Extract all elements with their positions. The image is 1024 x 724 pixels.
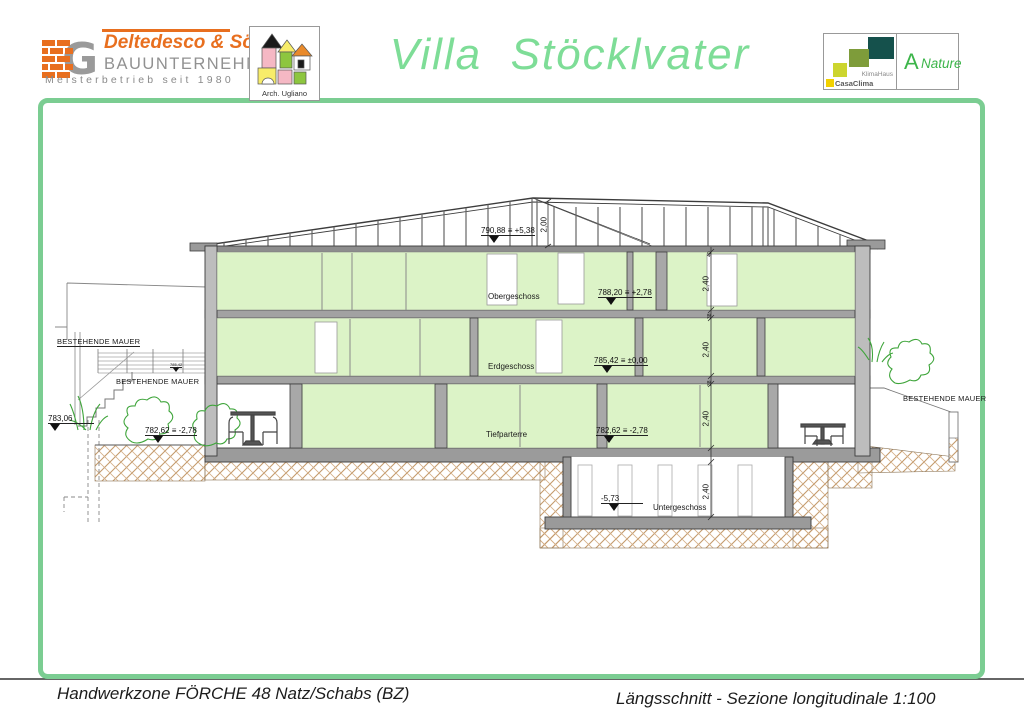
elevation-marker-terrace-left: 782,62 ≡ -2,78 [145,426,197,443]
project-address: Handwerkzone FÖRCHE 48 Natz/Schabs (BZ) [57,684,409,704]
level-triangle-icon [489,236,499,243]
level-triangle-icon [173,368,179,372]
elevation-marker-upper-floor: 788,20 ≡ +2,78 [598,288,652,305]
floor-label-untergeschoss: Untergeschoss [653,503,706,512]
floor-label-obergeschoss: Obergeschoss [488,292,540,301]
elevation-marker-wall: 785,42 [170,362,182,372]
basement [545,457,811,529]
nature-rating-badge: A Nature [896,33,959,90]
elevation-marker-eaves: 790,88 ≡ +5,38 [481,226,535,243]
level-triangle-icon [606,298,616,305]
brick-logo-icon: G [42,32,102,80]
roof [190,198,885,251]
elevation-marker-lower-floor: 782,62 ≡ -2,78 [596,426,648,443]
klimahaus-logo: KlimaHaus CasaClima [823,33,898,90]
dim-storey-tp: 2,40 [702,405,711,427]
dim-slab-1: 38 [707,307,713,319]
elevation-marker-ground-floor: 785,42 ≡ ±0,00 [594,356,648,373]
casaclima-brand: CasaClima [835,79,873,88]
elevation-marker-site-left: 783,06 [48,414,94,431]
room-obergeschoss [217,252,855,310]
company-logo: G Deltedesco & Söhne BAUUNTERNEHMEN Meis… [42,24,282,88]
floor-label-erdgeschoss: Erdgeschoss [488,362,534,371]
company-tagline: Meisterbetrieb seit 1980 [45,74,234,86]
dim-storey-og: 2,40 [702,270,711,292]
floor-label-tiefparterre: Tiefparterre [486,430,527,439]
table-right [801,424,845,446]
dim-storey-ug: 2,40 [702,478,711,500]
page-title: Villa Stöcklvater [370,30,770,80]
architect-art-icon [254,30,314,86]
level-triangle-icon [609,504,619,511]
existing-wall-railing [98,349,207,373]
dim-storey-eg: 2,40 [702,336,711,358]
site-left [55,283,207,522]
existing-wall-label-1: BESTEHENDE MAUER [57,337,140,347]
existing-wall-label-2: BESTEHENDE MAUER [116,377,199,386]
elevation-marker-basement: -5,73 [601,494,643,511]
architect-logo: Arch. Ugliano [249,26,320,101]
dim-slab-2: 38 [707,374,713,386]
room-tiefparterre [302,384,768,448]
dim-slab-top: 40 [707,245,713,257]
level-triangle-icon [604,436,614,443]
architect-name: Arch. Ugliano [250,89,319,98]
dim-ridge: 2,00 [540,211,549,233]
sheet-title: Längsschnitt - Sezione longitudinale 1:1… [616,689,935,709]
klimahaus-brand: KlimaHaus [862,71,893,78]
level-triangle-icon [602,366,612,373]
level-triangle-icon [153,436,163,443]
level-triangle-icon [50,424,60,431]
existing-wall-label-3: BESTEHENDE MAUER [903,394,986,403]
rating-letter: A [904,49,919,75]
drawing-sheet: G Deltedesco & Söhne BAUUNTERNEHMEN Meis… [0,0,1024,724]
rating-label: Nature [921,56,962,71]
